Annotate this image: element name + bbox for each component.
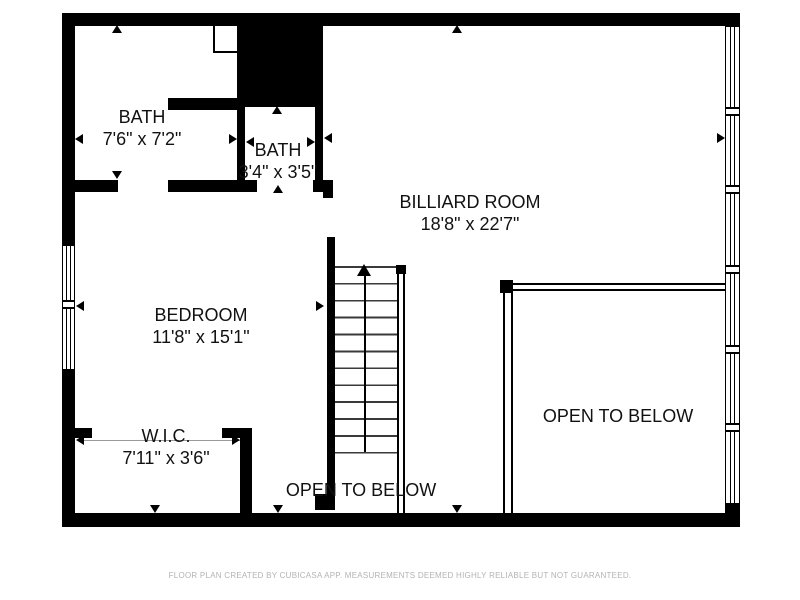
dim-arrow-billiard-right-icon: [717, 133, 725, 143]
open-below-corner-post: [500, 280, 513, 293]
room-name: BILLIARD ROOM: [370, 191, 570, 213]
dim-arrow-bath1-bottom-icon: [112, 171, 122, 179]
footer-disclaimer: FLOOR PLAN CREATED BY CUBICASA APP. MEAS…: [0, 571, 800, 580]
room-name: BEDROOM: [101, 304, 301, 326]
dim-arrow-bath1-top-icon: [112, 25, 122, 33]
room-name: BATH: [208, 139, 348, 161]
dim-arrow-billiard-top-icon: [452, 25, 462, 33]
open-below-label-center: OPEN TO BELOW: [261, 480, 461, 500]
dim-arrow-billiard-bottom-icon: [452, 505, 462, 513]
room-dims: 3'4" x 3'5": [208, 161, 348, 183]
open-below-label-right: OPEN TO BELOW: [518, 406, 718, 426]
billiard-window-wall: [725, 26, 740, 513]
chimney-void: [237, 26, 323, 107]
open-below-border-left: [503, 283, 513, 513]
wall-bedroom-top-left: [62, 180, 118, 192]
room-label-bedroom: BEDROOM 11'8" x 15'1": [101, 304, 301, 348]
stair-railing-post: [396, 265, 406, 274]
window-divider: [726, 345, 739, 354]
wall-outer-bottom: [62, 513, 740, 527]
dim-arrow-bedroom-left-icon: [76, 301, 84, 311]
window-divider: [726, 185, 739, 194]
stairs-direction-line: [364, 274, 366, 452]
floor-plan: BATH 7'6" x 7'2" BATH 3'4" x 3'5" BILLIA…: [0, 0, 800, 600]
window-wall-end-block: [725, 503, 740, 515]
window-divider: [726, 265, 739, 274]
wall-stairwell-left: [327, 237, 335, 510]
shower-fixture: [213, 26, 237, 53]
dim-arrow-bedroom-right-icon: [316, 301, 324, 311]
dim-arrow-bedroom-bottom-icon: [273, 505, 283, 513]
wall-outer-top: [62, 13, 740, 26]
open-below-border-top: [503, 283, 725, 291]
dim-arrow-bath2-bottom-icon: [273, 185, 283, 193]
dim-arrow-bath2-top-icon: [272, 106, 282, 114]
room-dims: 18'8" x 22'7": [370, 213, 570, 235]
bedroom-window: [62, 245, 75, 370]
room-label-bath2: BATH 3'4" x 3'5": [208, 139, 348, 183]
window-divider: [726, 423, 739, 432]
stairs-up-arrow-icon: [357, 264, 371, 276]
stairs: [335, 266, 397, 454]
room-name: W.I.C.: [66, 425, 266, 447]
stair-railing-line: [397, 267, 405, 513]
room-name: BATH: [42, 106, 242, 128]
window-divider: [726, 107, 739, 116]
room-label-billiard: BILLIARD ROOM 18'8" x 22'7": [370, 191, 570, 235]
window-divider: [63, 300, 74, 309]
room-label-wic: W.I.C. 7'11" x 3'6": [66, 425, 266, 469]
room-dims: 7'11" x 3'6": [66, 447, 266, 469]
dim-arrow-wic-bottom-icon: [150, 505, 160, 513]
room-dims: 11'8" x 15'1": [101, 326, 301, 348]
